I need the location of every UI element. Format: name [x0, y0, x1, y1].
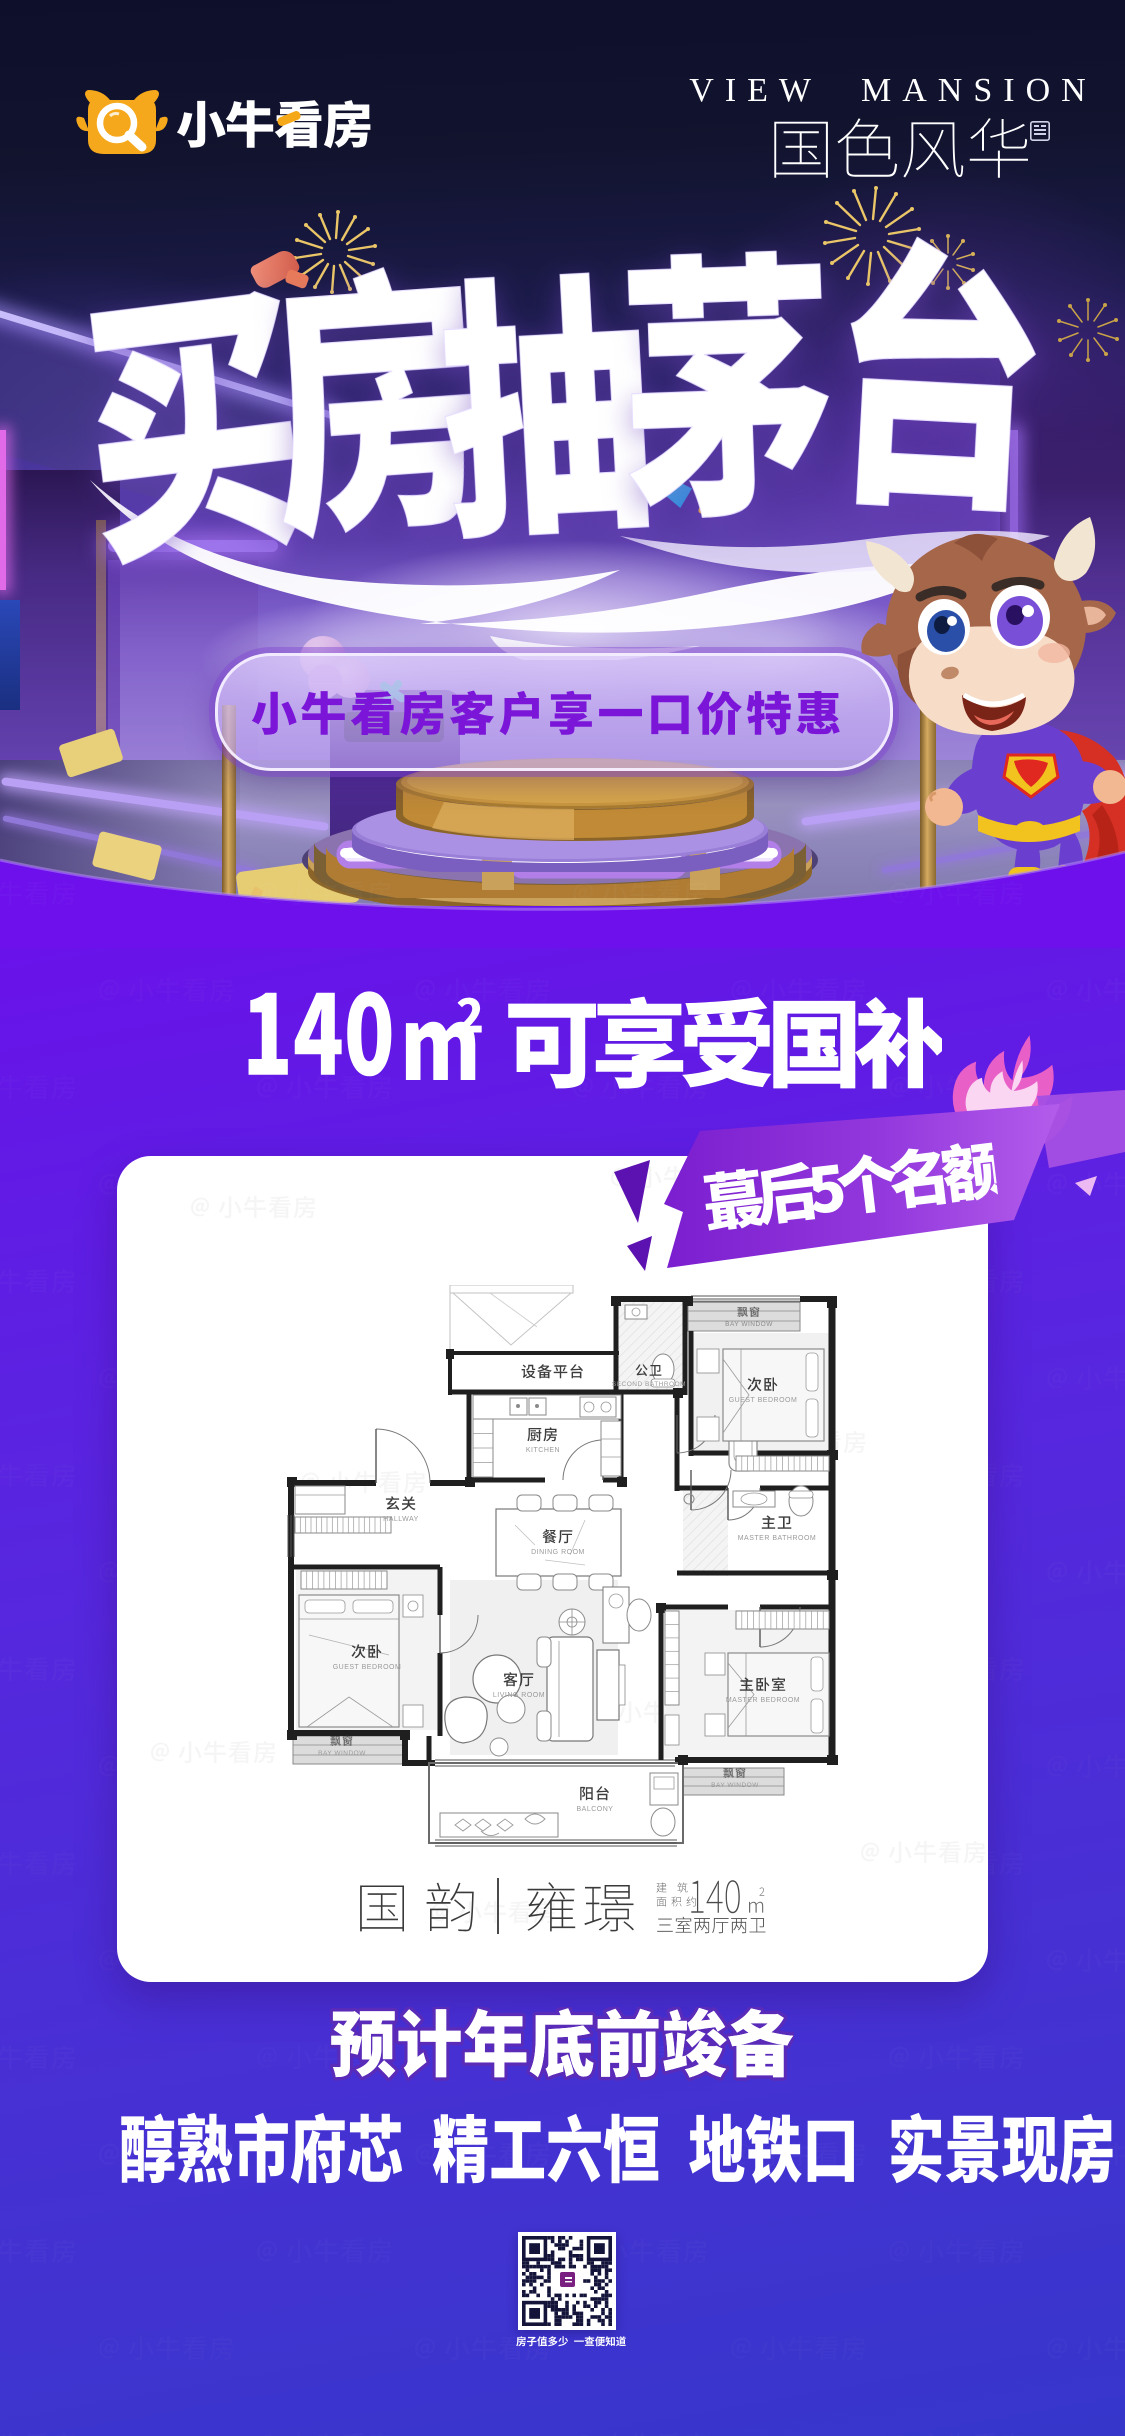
svg-text:KITCHEN: KITCHEN [526, 1447, 560, 1454]
svg-text:BAY WINDOW: BAY WINDOW [725, 1321, 773, 1328]
svg-text:MASTER BEDROOM: MASTER BEDROOM [726, 1697, 800, 1704]
svg-text:MASTER BATHROOM: MASTER BATHROOM [738, 1535, 817, 1542]
svg-text:HALLWAY: HALLWAY [383, 1516, 419, 1523]
svg-text:DINING ROOM: DINING ROOM [531, 1549, 585, 1556]
svg-text:BAY WINDOW: BAY WINDOW [711, 1782, 759, 1789]
svg-text:BALCONY: BALCONY [577, 1806, 614, 1813]
svg-text:SECOND BATHROOM: SECOND BATHROOM [612, 1381, 686, 1388]
svg-text:BAY WINDOW: BAY WINDOW [318, 1750, 366, 1757]
svg-text:LIVING ROOM: LIVING ROOM [493, 1692, 545, 1699]
svg-text:GUEST BEDROOM: GUEST BEDROOM [333, 1664, 402, 1671]
svg-text:GUEST BEDROOM: GUEST BEDROOM [729, 1397, 798, 1404]
